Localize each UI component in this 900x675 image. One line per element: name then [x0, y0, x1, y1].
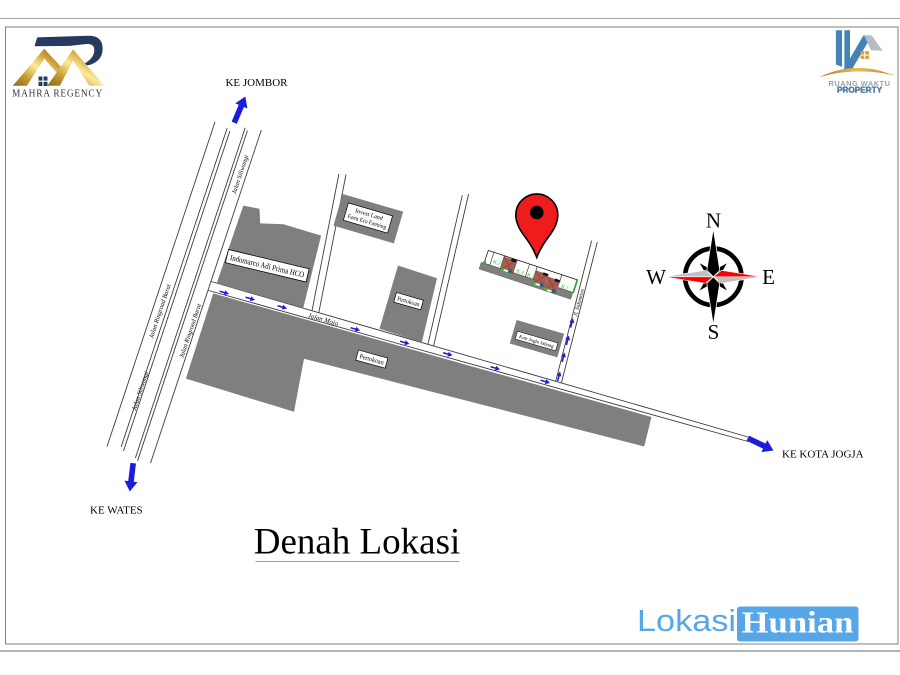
- svg-text:KE JOMBOR: KE JOMBOR: [225, 77, 288, 89]
- svg-text:PROPERTY: PROPERTY: [837, 85, 883, 94]
- svg-text:W: W: [646, 265, 666, 289]
- svg-text:E: E: [762, 265, 775, 289]
- svg-text:Hunian: Hunian: [742, 605, 854, 640]
- svg-text:Denah Lokasi: Denah Lokasi: [254, 522, 461, 563]
- svg-text:MAHRA REGENCY: MAHRA REGENCY: [12, 88, 103, 99]
- svg-text:N: N: [706, 209, 721, 233]
- svg-text:Lokasi: Lokasi: [637, 603, 736, 638]
- svg-text:KE WATES: KE WATES: [90, 505, 143, 517]
- svg-text:KE KOTA JOGJA: KE KOTA JOGJA: [782, 449, 864, 461]
- svg-text:S: S: [708, 320, 720, 344]
